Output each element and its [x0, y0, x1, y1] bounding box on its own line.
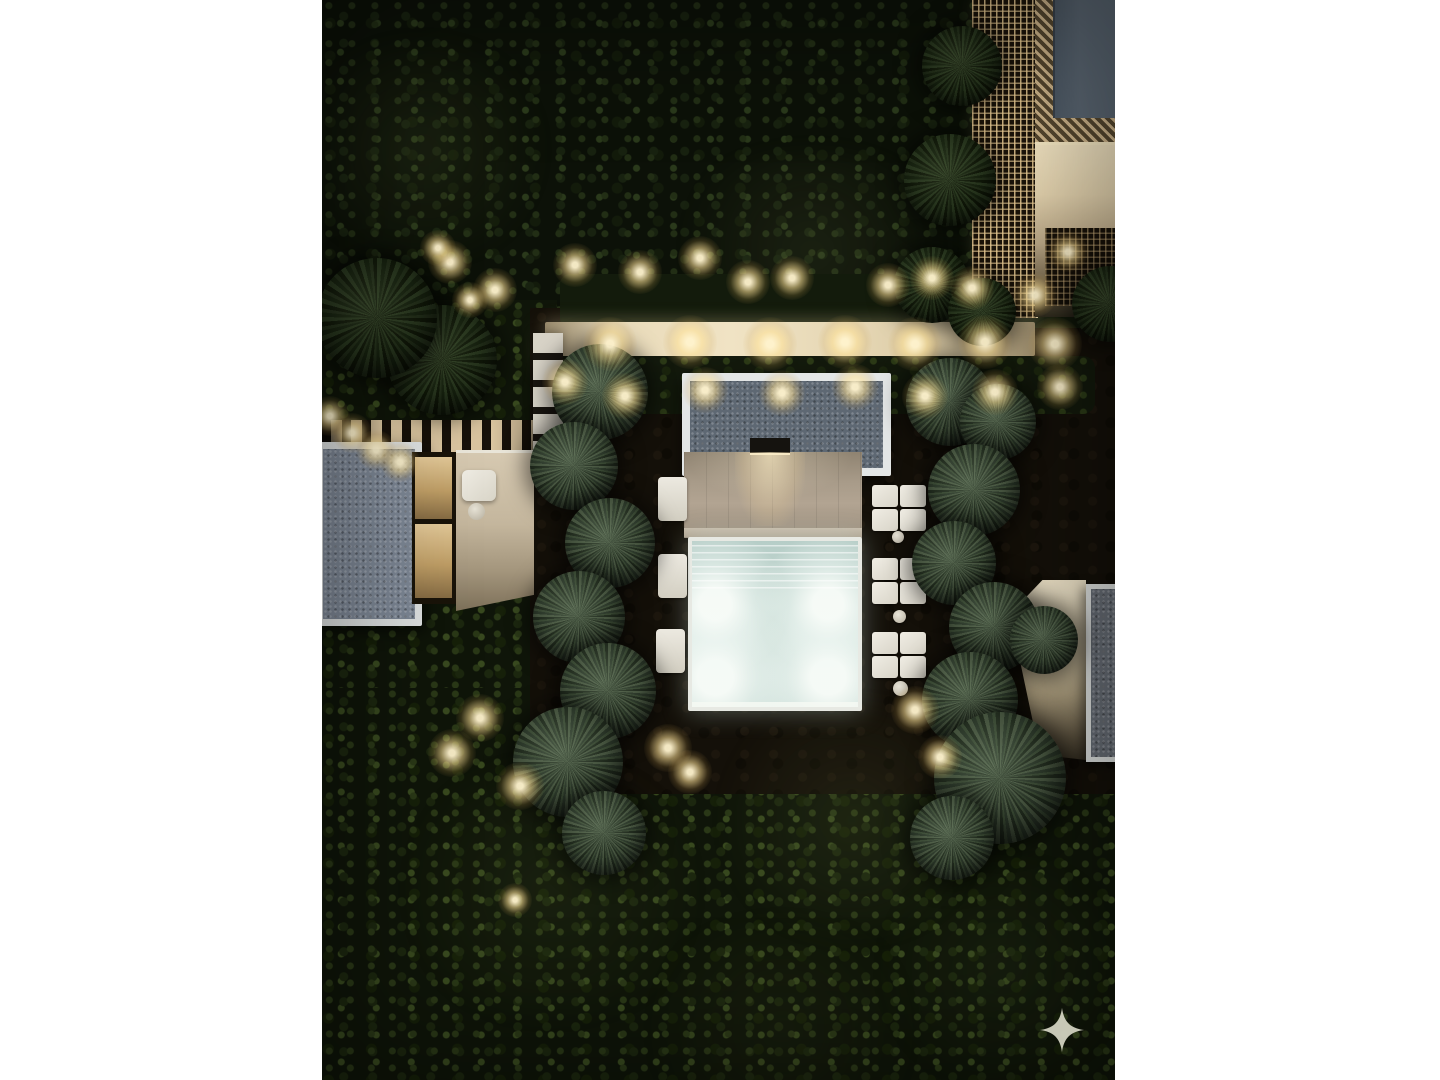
- right-building-gravel-roof: [1086, 584, 1115, 762]
- top-right-roof: [1053, 0, 1115, 120]
- garden-light: [958, 315, 1012, 369]
- lounger-cushion: [900, 632, 926, 654]
- garden-light: [678, 236, 722, 280]
- garden-light: [1037, 364, 1083, 410]
- garden-light: [910, 256, 954, 300]
- garden-light: [888, 317, 942, 371]
- garden-light: [380, 442, 420, 482]
- garden-light: [1048, 232, 1088, 272]
- garden-light: [972, 369, 1018, 415]
- garden-light: [668, 750, 712, 794]
- rendering-canvas: [0, 0, 1440, 1080]
- lounger-cushion: [872, 582, 898, 604]
- sun-lounger: [658, 554, 687, 598]
- deck-step-edge: [684, 528, 862, 537]
- sun-lounger-pair: [872, 632, 926, 678]
- garden-light: [832, 364, 878, 410]
- sparkle-icon: [1039, 1007, 1085, 1053]
- garden-light: [496, 762, 544, 810]
- lounger-cushion: [872, 558, 898, 580]
- side-table: [892, 531, 904, 543]
- left-white-margin: [0, 0, 322, 1080]
- garden-light: [866, 263, 910, 307]
- pool-cover-lines: [692, 545, 858, 593]
- garden-light: [542, 359, 588, 405]
- palm-tree: [1010, 606, 1078, 674]
- garden-light: [428, 729, 476, 777]
- left-building-interior: [412, 452, 456, 604]
- garden-light: [553, 243, 597, 287]
- outdoor-stool: [468, 503, 485, 520]
- lit-window: [415, 524, 452, 598]
- garden-light: [770, 256, 814, 300]
- pool-step-edge: [692, 702, 858, 707]
- lounger-cushion: [872, 632, 898, 654]
- leafy-tree: [922, 26, 1002, 106]
- garden-light: [902, 373, 948, 419]
- outdoor-sofa: [462, 470, 496, 501]
- lounger-cushion: [900, 509, 926, 531]
- palm-tree: [530, 422, 618, 510]
- lit-window: [415, 457, 452, 519]
- pavilion-light-cone: [735, 452, 805, 526]
- palm-tree: [910, 796, 994, 880]
- garden-light: [618, 250, 662, 294]
- garden-light: [682, 367, 728, 413]
- right-white-margin: [1115, 0, 1440, 1080]
- plunge-pool: [688, 537, 862, 711]
- garden-light: [420, 230, 456, 266]
- garden-light: [1013, 273, 1057, 317]
- garden-light: [583, 317, 637, 371]
- garden-light: [950, 266, 994, 310]
- garden-light: [743, 317, 797, 371]
- leafy-tree: [322, 258, 437, 378]
- garden-light: [891, 686, 939, 734]
- garden-light: [1028, 317, 1082, 371]
- garden-light: [726, 260, 770, 304]
- garden-light: [918, 735, 962, 779]
- lounger-cushion: [900, 656, 926, 678]
- garden-light: [663, 315, 717, 369]
- lounger-cushion: [872, 509, 898, 531]
- sun-lounger: [658, 477, 687, 521]
- garden-light: [498, 883, 532, 917]
- scene: [322, 0, 1115, 1080]
- garden-light: [452, 282, 488, 318]
- garden-light: [818, 315, 872, 369]
- leafy-tree: [904, 134, 996, 226]
- side-table: [893, 610, 906, 623]
- garden-light: [759, 370, 805, 416]
- lounger-cushion: [872, 656, 898, 678]
- lounger-cushion: [872, 485, 898, 507]
- deck-strip-horizontal: [1035, 118, 1115, 145]
- palm-tree: [562, 791, 646, 875]
- sun-lounger-pair: [872, 485, 926, 531]
- lounger-cushion: [900, 485, 926, 507]
- sun-lounger: [656, 629, 685, 673]
- garden-light: [602, 373, 648, 419]
